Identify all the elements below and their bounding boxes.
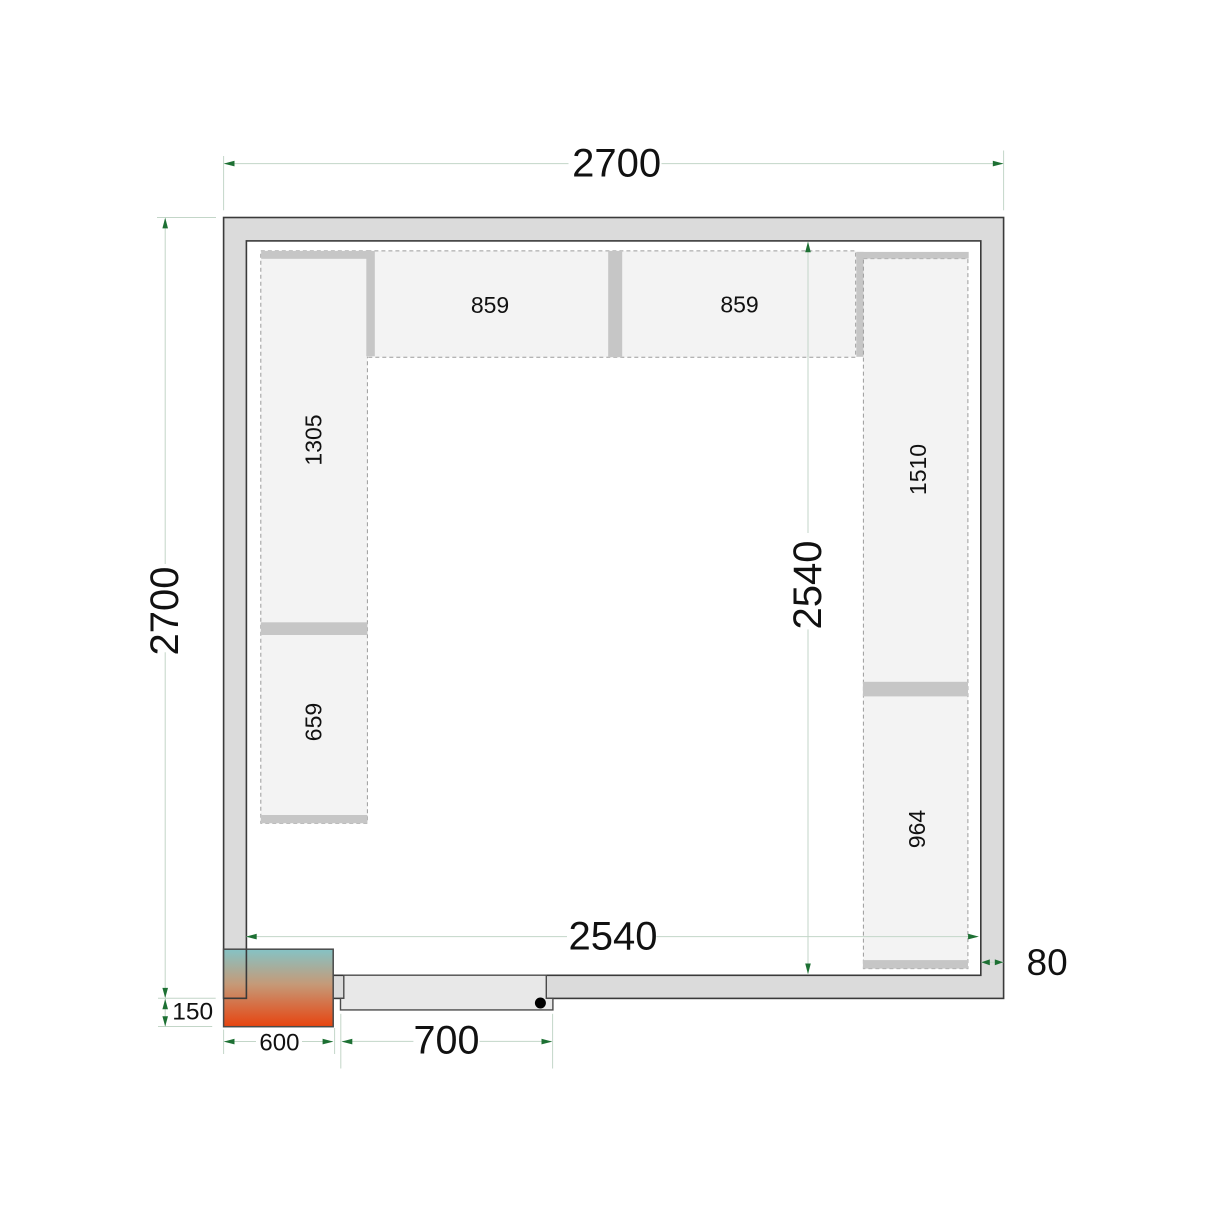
svg-text:859: 859 [471,292,509,318]
svg-text:700: 700 [414,1018,480,1062]
svg-text:659: 659 [301,703,327,741]
svg-text:2700: 2700 [143,567,187,656]
svg-text:859: 859 [720,292,758,318]
svg-text:1305: 1305 [301,414,327,465]
svg-text:2540: 2540 [569,914,658,958]
svg-text:80: 80 [1027,942,1068,983]
svg-text:150: 150 [172,999,213,1026]
svg-text:600: 600 [259,1029,299,1056]
svg-text:2700: 2700 [572,142,661,186]
svg-text:964: 964 [904,810,930,849]
svg-text:1510: 1510 [905,444,931,495]
svg-text:2540: 2540 [786,541,830,630]
